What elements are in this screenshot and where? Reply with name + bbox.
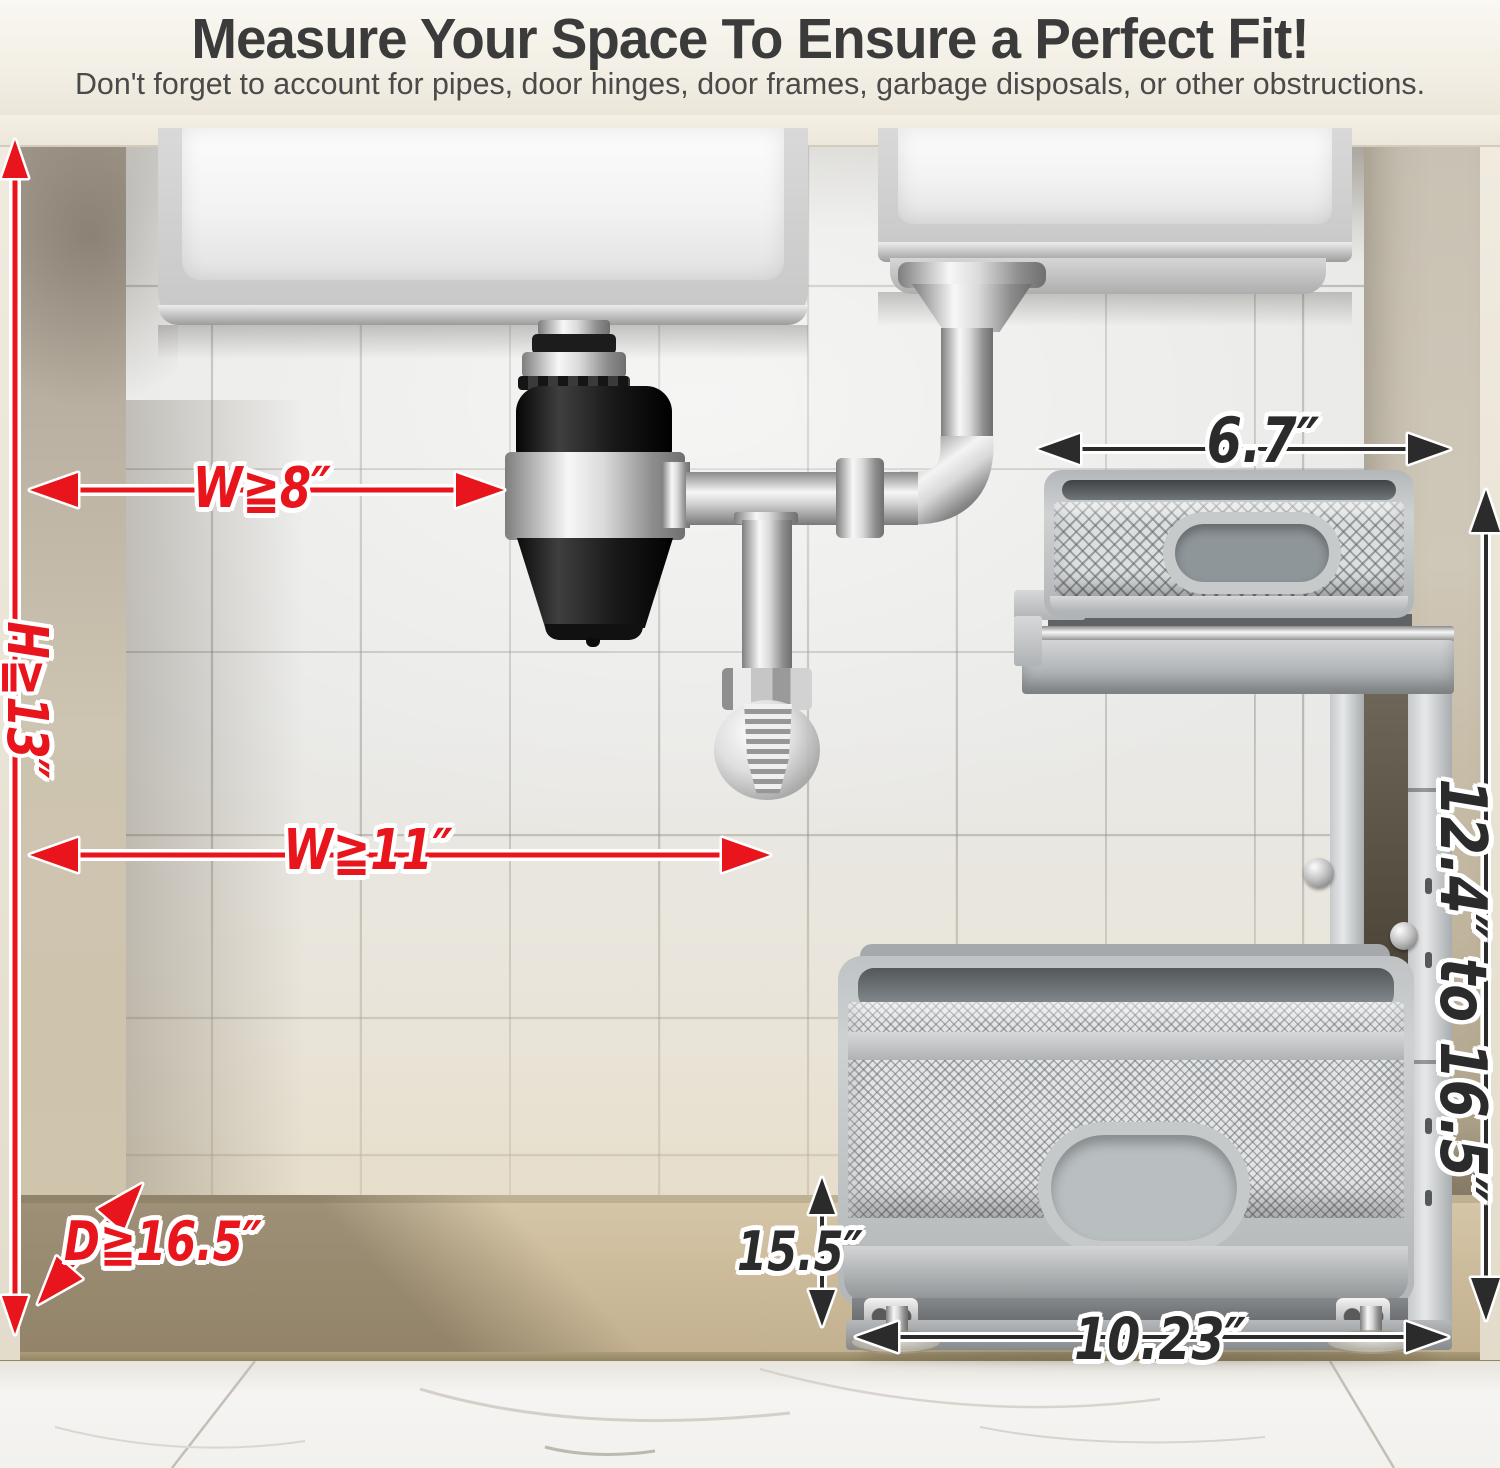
disposal-rubber-gasket [532,334,616,354]
shelf-bracket-arm [1014,616,1042,666]
header-band: Measure Your Space To Ensure a Perfect F… [0,0,1500,115]
bottom-basket [838,956,1414,1306]
frame-post-inner [1330,694,1364,986]
sink-left-face [182,128,784,280]
pipe-tee-drop [742,520,792,672]
label-frame-height-range: 12.4″ to 16.5″ [1430,778,1494,1201]
disposal-clamp-ring [522,352,626,378]
marble-floor [0,1361,1500,1468]
bottom-basket-bottom-band [844,1246,1408,1302]
page-title: Measure Your Space To Ensure a Perfect F… [30,6,1470,72]
label-organizer-height: 15.5″ [737,1225,863,1279]
label-top-basket-width: 6.7″ [1207,410,1320,472]
shelf-tier [1022,640,1454,694]
sink-basin-left [158,128,808,325]
sink-left-rim [158,305,808,325]
leveling-foot-right [1326,1330,1418,1354]
corner-shadow-left [18,145,178,445]
adjust-screw-knob [1390,922,1418,950]
top-basket-bottom-band [1050,596,1408,612]
page-subtitle: Don't forget to account for pipes, door … [15,66,1485,102]
adjust-screw-knob [1304,858,1334,888]
marble-veins [0,1361,1500,1468]
drain-pipe-vertical [941,328,993,444]
label-cabinet-width-mid: W≧11″ [283,823,452,879]
disposal-chrome-band [505,452,685,540]
sink-right-face [898,128,1332,224]
infographic-measure-space: Measure Your Space To Ensure a Perfect F… [0,0,1500,1468]
top-basket-handle-cutout [1163,512,1341,594]
top-basket-opening [1062,480,1396,500]
label-cabinet-depth: D≧16.5″ [64,1215,262,1269]
label-bottom-basket-width: 10.23″ [1074,1310,1246,1368]
disposal-upper-body [516,386,672,458]
bottom-basket-band [848,1032,1404,1060]
sink-left-shadow [158,325,808,359]
leveling-foot-left [850,1330,942,1354]
top-basket [1044,470,1414,618]
label-cabinet-width-top: W≧8″ [193,461,331,517]
bottom-basket-handle-cutout [1038,1122,1250,1254]
pipe-coupling-nut [836,458,884,538]
sink-basin-right [878,128,1352,262]
label-cabinet-height: H≧13″ [0,621,54,778]
